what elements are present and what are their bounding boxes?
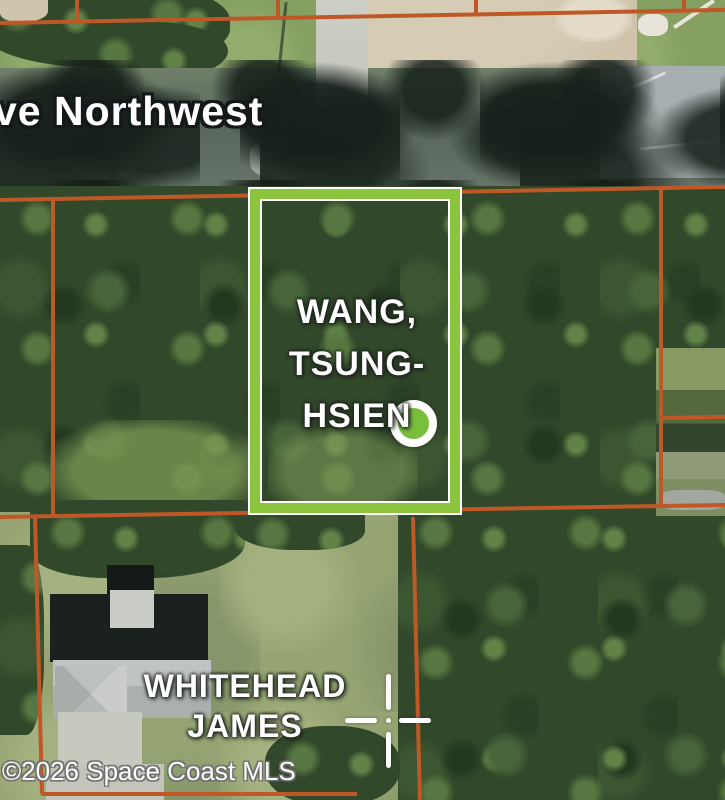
owner-line: WHITEHEAD (95, 666, 395, 706)
parcel-line-right (659, 188, 663, 508)
parcel-line-stub (75, 0, 79, 22)
parcel-line-lower-bottom (41, 792, 357, 796)
house-roof-light-section (110, 590, 154, 628)
parcel-line-left (51, 199, 55, 517)
parcel-line-stub (276, 0, 280, 18)
copyright-label: ©2026 Space Coast MLS (2, 756, 296, 787)
adjacent-parcel-owner-label: WHITEHEAD JAMES (95, 666, 395, 746)
selected-parcel-owner-label: WANG, TSUNG- HSIEN (252, 286, 462, 442)
parcel-line-stub (474, 0, 478, 15)
sand-bright-spot (556, 0, 632, 42)
shed-roof (638, 14, 668, 36)
owner-line: JAMES (95, 706, 395, 746)
parcel-line-stub (682, 0, 686, 11)
aerial-map: ve Northwest WANG, TSUNG- HSIEN WHITEHEA… (0, 0, 725, 800)
owner-line: TSUNG- (252, 338, 462, 390)
sand-patch (0, 0, 48, 22)
owner-line: HSIEN (252, 390, 462, 442)
street-name-label: ve Northwest (0, 88, 263, 135)
owner-line: WANG, (252, 286, 462, 338)
forest-lower-right (398, 500, 725, 800)
